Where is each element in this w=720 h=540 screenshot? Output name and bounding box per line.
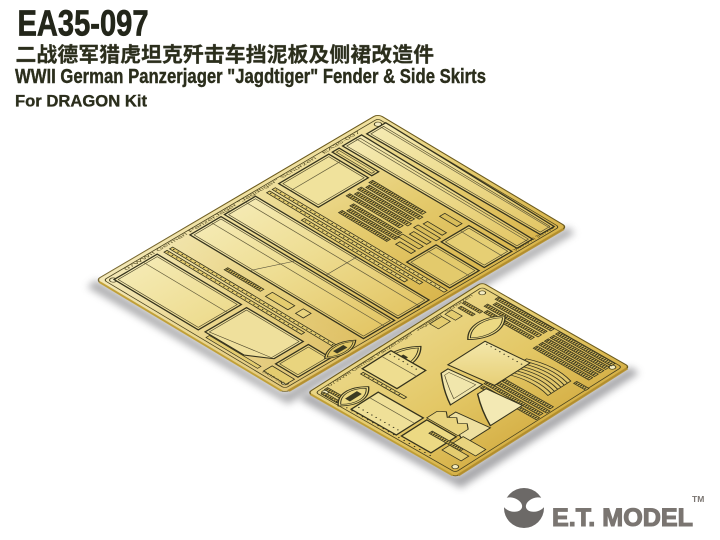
svg-text:For DRAGON Kit: For DRAGON Kit bbox=[15, 92, 147, 111]
svg-text:TM: TM bbox=[692, 494, 704, 504]
svg-text:EA35-097: EA35-097 bbox=[18, 2, 149, 43]
svg-text:E.T. MODEL: E.T. MODEL bbox=[552, 504, 693, 532]
svg-text:WWII German Panzerjager "Jagdt: WWII German Panzerjager "Jagdtiger" Fend… bbox=[15, 65, 486, 88]
